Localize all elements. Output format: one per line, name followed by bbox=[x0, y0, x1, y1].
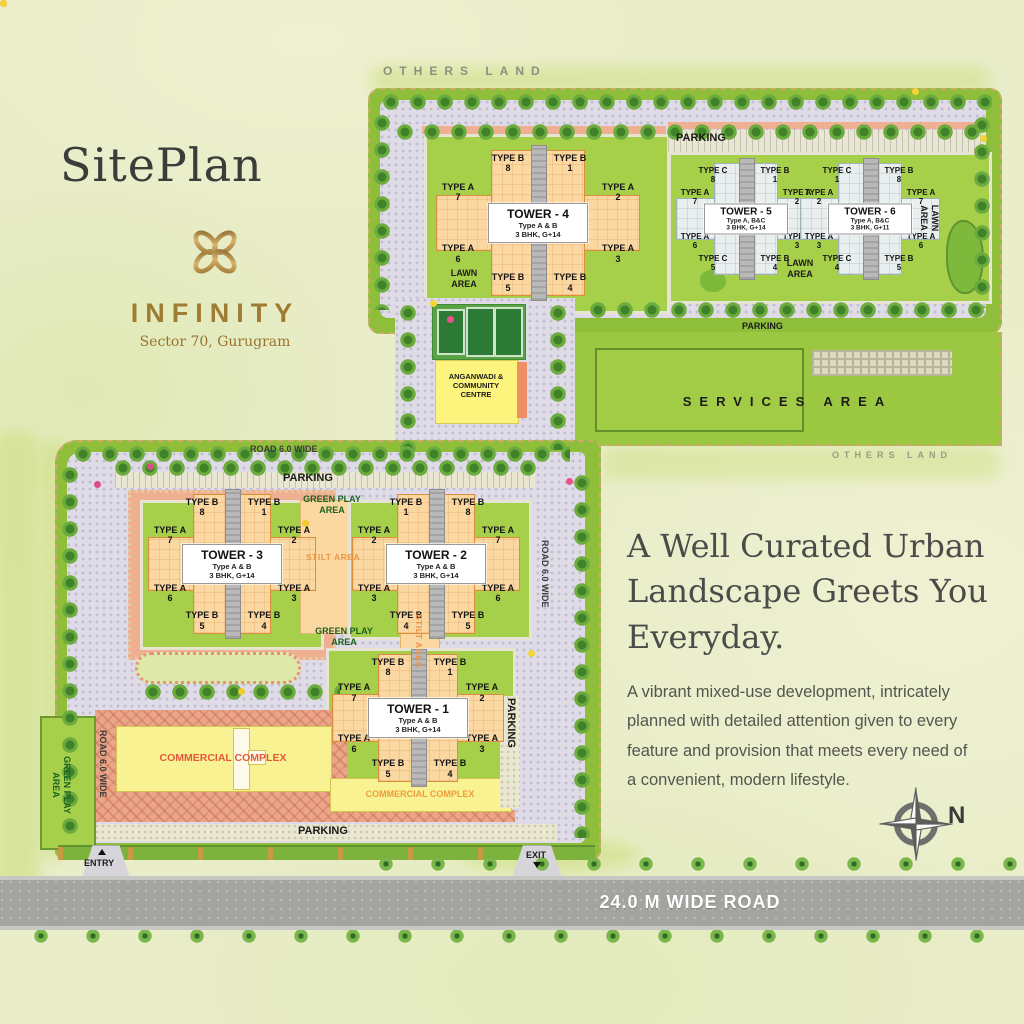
unit-label: TYPE B8 bbox=[176, 497, 228, 518]
label-stilt-h: STILT AREA bbox=[306, 552, 360, 562]
label-commercial-main: COMMERCIAL COMPLEX bbox=[130, 752, 316, 764]
unit-label: TYPE C8 bbox=[690, 166, 736, 184]
tower-name-card: TOWER - 6 Type A, B&C 3 BHK, G+11 bbox=[828, 204, 912, 235]
services-lawn bbox=[595, 348, 804, 432]
tree-column bbox=[372, 110, 392, 310]
tree-row bbox=[140, 682, 340, 702]
unit-label: TYPE A2 bbox=[268, 525, 320, 546]
unit-label: TYPE B1 bbox=[752, 166, 798, 184]
unit-label: TYPE A2 bbox=[348, 525, 400, 546]
siteplan-poster: TYPE B8TYPE B1TYPE A7TYPE A2TYPE A6TYPE … bbox=[0, 0, 1024, 1024]
unit-label: TYPE B4 bbox=[380, 610, 432, 631]
tower-name-card: TOWER - 5 Type A, B&C 3 BHK, G+14 bbox=[704, 204, 788, 235]
label-road-60-top: ROAD 6.0 WIDE bbox=[250, 444, 318, 454]
unit-label: TYPE A3 bbox=[796, 232, 842, 250]
label-lawn-right: LAWN AREA bbox=[918, 196, 940, 240]
label-road-60-left: ROAD 6.0 WIDE bbox=[98, 730, 108, 798]
unit-label: TYPE B5 bbox=[482, 272, 534, 293]
tree-column bbox=[398, 300, 418, 458]
unit-label: TYPE B1 bbox=[424, 657, 476, 678]
unit-label: TYPE A6 bbox=[672, 232, 718, 250]
oval-lawn-feature bbox=[135, 652, 301, 684]
label-green-play-mid: GREEN PLAY AREA bbox=[312, 626, 376, 648]
tower-name-card: TOWER - 3 Type A & B 3 BHK, G+14 bbox=[182, 544, 282, 584]
tower-name-card: TOWER - 4 Type A & B 3 BHK, G+14 bbox=[488, 203, 588, 243]
headline-line: Landscape Greets You bbox=[627, 569, 988, 614]
unit-label: TYPE C1 bbox=[814, 166, 860, 184]
unit-label: TYPE B5 bbox=[362, 758, 414, 779]
brand-location: Sector 70, Gurugram bbox=[105, 334, 325, 350]
unit-label: TYPE B1 bbox=[380, 497, 432, 518]
tower-1: TYPE B8TYPE B1TYPE A7TYPE A2TYPE A6TYPE … bbox=[332, 654, 504, 782]
main-road: 24.0 M WIDE ROAD bbox=[0, 876, 1024, 930]
infinity-knot-icon bbox=[182, 214, 248, 290]
label-parking-lower-right: PARKING bbox=[505, 698, 517, 748]
unit-label: TYPE A7 bbox=[432, 182, 484, 203]
unit-label: TYPE B8 bbox=[442, 497, 494, 518]
unit-label: TYPE B1 bbox=[544, 153, 596, 174]
unit-label: TYPE B8 bbox=[482, 153, 534, 174]
tree-row bbox=[585, 300, 985, 320]
unit-label: TYPE B5 bbox=[176, 610, 228, 631]
unit-label: TYPE B8 bbox=[362, 657, 414, 678]
unit-label: TYPE A6 bbox=[144, 583, 196, 604]
headline-line: A Well Curated Urban bbox=[627, 524, 988, 569]
tree-column bbox=[548, 300, 568, 450]
page-title: SitePlan bbox=[60, 138, 263, 192]
label-commercial-t1: COMMERCIAL COMPLEX bbox=[330, 789, 510, 799]
label-anganwadi: ANGANWADI & COMMUNITY CENTRE bbox=[440, 372, 512, 399]
headline: A Well Curated Urban Landscape Greets Yo… bbox=[627, 524, 988, 660]
services-paver bbox=[812, 350, 952, 376]
tree-column bbox=[572, 470, 592, 838]
north-label: N bbox=[948, 802, 965, 830]
unit-label: TYPE A7 bbox=[472, 525, 524, 546]
court bbox=[466, 307, 495, 357]
body-text: A vibrant mixed-use development, intrica… bbox=[627, 678, 979, 795]
label-green-play-top: GREEN PLAY AREA bbox=[300, 494, 364, 516]
unit-label: TYPE A3 bbox=[268, 583, 320, 604]
tower-name-card: TOWER - 1 Type A & B 3 BHK, G+14 bbox=[368, 698, 468, 738]
tower-3: TYPE B8TYPE B1TYPE A7TYPE A2TYPE A6TYPE … bbox=[148, 494, 316, 634]
label-parking-lower: PARKING bbox=[283, 472, 333, 484]
unit-label: TYPE B8 bbox=[876, 166, 922, 184]
unit-label: TYPE A2 bbox=[592, 182, 644, 203]
unit-label: TYPE B4 bbox=[238, 610, 290, 631]
label-parking-top: PARKING bbox=[676, 132, 726, 144]
unit-label: TYPE A6 bbox=[432, 243, 484, 264]
label-lawn-t56: LAWN AREA bbox=[778, 258, 822, 280]
court bbox=[494, 307, 523, 357]
label-others-land-right: OTHERS LAND bbox=[832, 450, 952, 460]
unit-label: TYPE A3 bbox=[592, 243, 644, 264]
foliage-decor bbox=[0, 430, 40, 900]
label-exit: EXIT bbox=[526, 850, 546, 860]
label-parking-services: PARKING bbox=[742, 321, 783, 331]
label-stilt-v: STILT AREA bbox=[414, 614, 424, 668]
label-services-area: SERVICES AREA bbox=[575, 394, 1000, 409]
label-green-play-left: GREEN PLAY AREA bbox=[50, 752, 72, 818]
tree-column bbox=[972, 112, 992, 308]
unit-label: TYPE A6 bbox=[472, 583, 524, 604]
label-main-road: 24.0 M WIDE ROAD bbox=[599, 892, 780, 913]
tower-2: TYPE B1TYPE B8TYPE A2TYPE A7TYPE A3TYPE … bbox=[352, 494, 520, 634]
court bbox=[437, 309, 465, 355]
unit-label: TYPE A3 bbox=[348, 583, 400, 604]
unit-label: TYPE B1 bbox=[238, 497, 290, 518]
entry-arrow-icon bbox=[98, 849, 106, 855]
tree-row bbox=[378, 92, 992, 112]
label-others-land-top: OTHERS LAND bbox=[383, 64, 547, 78]
anganwadi-accent bbox=[517, 362, 527, 418]
compass-icon bbox=[878, 786, 954, 862]
headline-line: Everyday. bbox=[627, 615, 988, 660]
label-road-60-right: ROAD 6.0 WIDE bbox=[540, 540, 550, 608]
unit-label: TYPE B4 bbox=[544, 272, 596, 293]
unit-label: TYPE B5 bbox=[876, 254, 922, 272]
sports-courts bbox=[432, 304, 526, 360]
flower-decor bbox=[0, 0, 7, 7]
unit-label: TYPE B5 bbox=[442, 610, 494, 631]
tower-name-card: TOWER - 2 Type A & B 3 BHK, G+14 bbox=[386, 544, 486, 584]
exit-arrow-icon bbox=[533, 862, 541, 868]
label-parking-lower-bottom: PARKING bbox=[298, 825, 348, 837]
label-entry: ENTRY bbox=[84, 858, 114, 868]
unit-label: TYPE C5 bbox=[690, 254, 736, 272]
unit-label: TYPE B4 bbox=[424, 758, 476, 779]
label-lawn-t4: LAWN AREA bbox=[442, 268, 486, 290]
brand-name: INFINITY bbox=[105, 298, 325, 329]
unit-label: TYPE A7 bbox=[144, 525, 196, 546]
